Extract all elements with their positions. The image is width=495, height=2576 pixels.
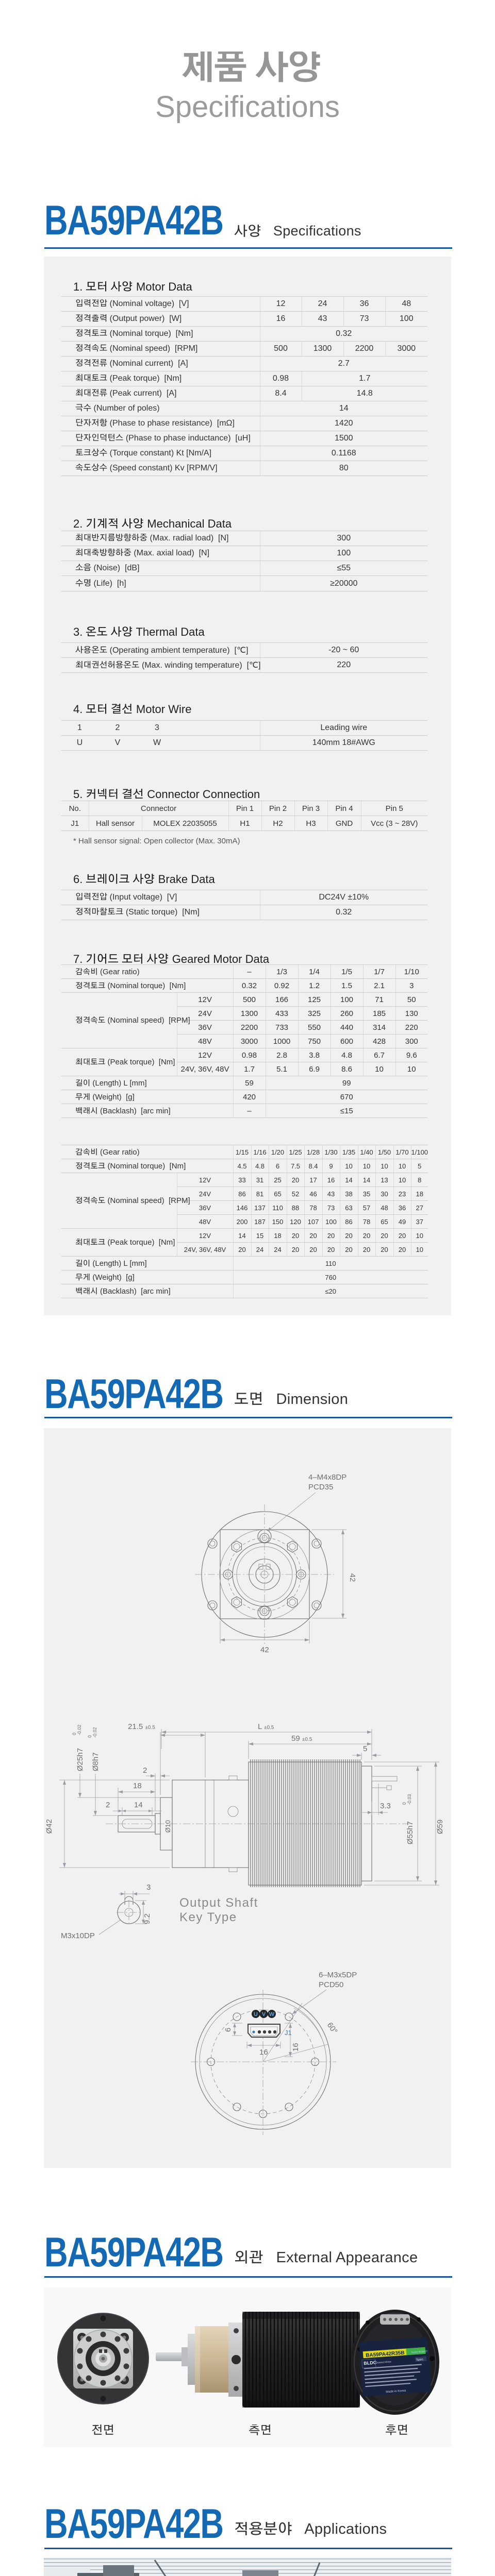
svg-text:W: W <box>269 2011 275 2018</box>
svg-text:Spec.: Spec. <box>416 2358 424 2362</box>
svg-text:0: 0 <box>87 1735 92 1738</box>
svg-text:L ±0.5: L ±0.5 <box>258 1722 274 1731</box>
svg-text:M3x10DP: M3x10DP <box>61 1931 95 1940</box>
svg-text:9.2: 9.2 <box>143 1913 152 1924</box>
svg-text:Ø42: Ø42 <box>45 1819 54 1834</box>
svg-text:42: 42 <box>348 1573 357 1582</box>
svg-text:-0.03: -0.03 <box>407 1794 412 1805</box>
svg-text:6: 6 <box>224 2028 233 2032</box>
svg-text:5: 5 <box>363 1744 367 1753</box>
svg-text:Ø59: Ø59 <box>436 1820 444 1834</box>
svg-text:2: 2 <box>143 1766 147 1775</box>
svg-text:59 ±0.5: 59 ±0.5 <box>291 1734 312 1743</box>
svg-text:Ø10: Ø10 <box>164 1820 172 1833</box>
svg-text:3: 3 <box>146 1883 151 1892</box>
svg-text:-0.02: -0.02 <box>92 1727 97 1738</box>
svg-text:PCD50: PCD50 <box>319 1980 343 1989</box>
svg-text:PCD35: PCD35 <box>308 1483 333 1492</box>
svg-text:Key Type: Key Type <box>179 1910 237 1924</box>
svg-text:-0.02: -0.02 <box>77 1724 82 1735</box>
svg-text:6–M3x5DP: 6–M3x5DP <box>319 1971 357 1979</box>
svg-text:V: V <box>262 2011 266 2018</box>
svg-text:21.5 ±0.5: 21.5 ±0.5 <box>128 1722 155 1731</box>
svg-text:0: 0 <box>72 1733 77 1735</box>
svg-text:U: U <box>254 2011 258 2018</box>
svg-text:BLDC: BLDC <box>364 2360 377 2366</box>
svg-text:14: 14 <box>134 1801 143 1809</box>
svg-text:Ø55h7: Ø55h7 <box>406 1821 415 1844</box>
svg-text:Output Shaft: Output Shaft <box>179 1896 258 1910</box>
svg-text:Ø25h7: Ø25h7 <box>76 1748 85 1771</box>
svg-text:J1: J1 <box>285 2029 292 2037</box>
svg-text:42: 42 <box>260 1646 269 1654</box>
svg-text:0: 0 <box>402 1802 407 1805</box>
svg-text:3.3: 3.3 <box>380 1802 391 1810</box>
svg-text:60°: 60° <box>325 2021 339 2036</box>
svg-text:2: 2 <box>106 1801 110 1809</box>
svg-text:16: 16 <box>259 2048 268 2057</box>
svg-text:Ø8h7: Ø8h7 <box>91 1752 100 1771</box>
svg-text:4–M4x8DP: 4–M4x8DP <box>308 1473 346 1482</box>
svg-text:16: 16 <box>291 2043 300 2052</box>
svg-text:18: 18 <box>133 1782 142 1790</box>
